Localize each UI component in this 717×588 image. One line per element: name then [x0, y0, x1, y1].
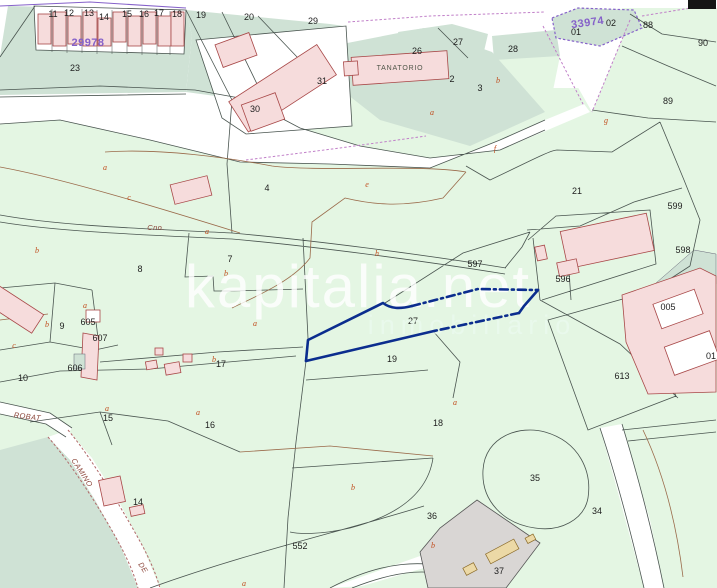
cadastral-map-image: 1112131415161718192023293130262728010288…: [0, 0, 717, 588]
shed-17: [155, 348, 163, 355]
parcel-number-label: 17: [216, 359, 226, 369]
watermark-subtitle: inmobiliario: [368, 310, 577, 340]
subparcel-letter-label: a: [253, 319, 257, 328]
parcel-number-label: 02: [606, 18, 616, 28]
parcel-number-label: 3: [477, 83, 482, 93]
parcel-number-label: 606: [67, 363, 82, 373]
parcel-number-label: 14: [99, 12, 109, 22]
cadastral-map: 1112131415161718192023293130262728010288…: [0, 0, 717, 588]
parcel-number-label: 607: [92, 333, 107, 343]
shed-17: [164, 362, 181, 375]
parcel-number-label: 29: [308, 16, 318, 26]
subparcel-letter-label: c: [12, 341, 16, 350]
parcel-number-label: 552: [292, 541, 307, 551]
parcel-number-label: 11: [48, 9, 57, 19]
parcel-number-label: 15: [122, 9, 132, 19]
parcel-number-label: 18: [433, 418, 443, 428]
parcel-number-label: 18: [172, 9, 182, 19]
building-name-label: TANATORIO: [377, 65, 424, 72]
parcel-number-label: 34: [592, 506, 602, 516]
subparcel-letter-label: b: [45, 320, 49, 329]
subparcel-letter-label: b: [212, 355, 216, 364]
parcel-number-label: 20: [244, 12, 254, 22]
subparcel-letter-label: a: [430, 108, 434, 117]
parcel-number-label: 17: [154, 8, 164, 18]
house: [158, 16, 171, 46]
parcel-number-label: 9: [59, 321, 64, 331]
parcel-number-label: 35: [530, 473, 540, 483]
parcel-number-label: 23: [70, 63, 80, 73]
subparcel-letter-label: c: [127, 193, 131, 202]
parcel-number-label: 8: [137, 264, 142, 274]
parcel-number-label: 14: [133, 497, 143, 507]
parcel-number-label: 613: [614, 371, 629, 381]
subparcel-letter-label: a: [196, 408, 200, 417]
shed-17: [183, 354, 192, 362]
parcel-number-label: 27: [453, 37, 463, 47]
parcel-number-label: 88: [643, 20, 653, 30]
subparcel-letter-label: a: [205, 227, 209, 236]
parcel-number-label: 26: [412, 46, 422, 56]
subparcel-letter-label: b: [351, 483, 355, 492]
parcel-number-label: 37: [494, 566, 504, 576]
parcel-number-label: 36: [427, 511, 437, 521]
shed-17: [145, 360, 157, 370]
map-sheet-corner-mark: [688, 0, 716, 9]
parcel-number-label: 12: [64, 8, 74, 18]
road-name-label: Cno.: [147, 223, 164, 232]
parcel-number-label: 16: [139, 9, 149, 19]
parcel-number-label: 4: [264, 183, 269, 193]
parcel-number-label: 13: [84, 8, 94, 18]
parcel-number-label: 15: [103, 413, 113, 423]
parcel-number-label: 005: [660, 302, 675, 312]
parcel-number-label: 19: [387, 354, 397, 364]
parcel-number-label: 30: [250, 104, 260, 114]
parcel-number-label: 90: [698, 38, 708, 48]
parcel-number-label: 596: [555, 274, 570, 284]
tanatorio-building-annex: [343, 61, 358, 76]
subparcel-letter-label: a: [453, 398, 457, 407]
subparcel-letter-label: g: [604, 116, 608, 125]
cadastral-block-label: 29978: [71, 37, 104, 49]
subparcel-letter-label: b: [496, 76, 500, 85]
subparcel-letter-label: b: [35, 246, 39, 255]
parcel-number-label: 28: [508, 44, 518, 54]
parcel-number-label: 01: [706, 351, 716, 361]
subparcel-letter-label: e: [365, 180, 369, 189]
parcel-number-label: 605: [80, 317, 95, 327]
parcel-number-label: 21: [572, 186, 582, 196]
parcel-number-label: 598: [675, 245, 690, 255]
parcel-number-label: 31: [317, 76, 327, 86]
subparcel-letter-label: a: [83, 301, 87, 310]
house: [128, 16, 141, 46]
parcel-number-label: 16: [205, 420, 215, 430]
parcel-number-label: 599: [667, 201, 682, 211]
subparcel-letter-label: a: [105, 404, 109, 413]
subparcel-letter-label: a: [103, 163, 107, 172]
parcel-number-label: 2: [449, 74, 454, 84]
subparcel-letter-label: a: [242, 579, 246, 588]
subparcel-letter-label: b: [431, 541, 435, 550]
parcel-number-label: 19: [196, 10, 206, 20]
parcel-number-label: 89: [663, 96, 673, 106]
parcel-number-label: 10: [18, 373, 28, 383]
